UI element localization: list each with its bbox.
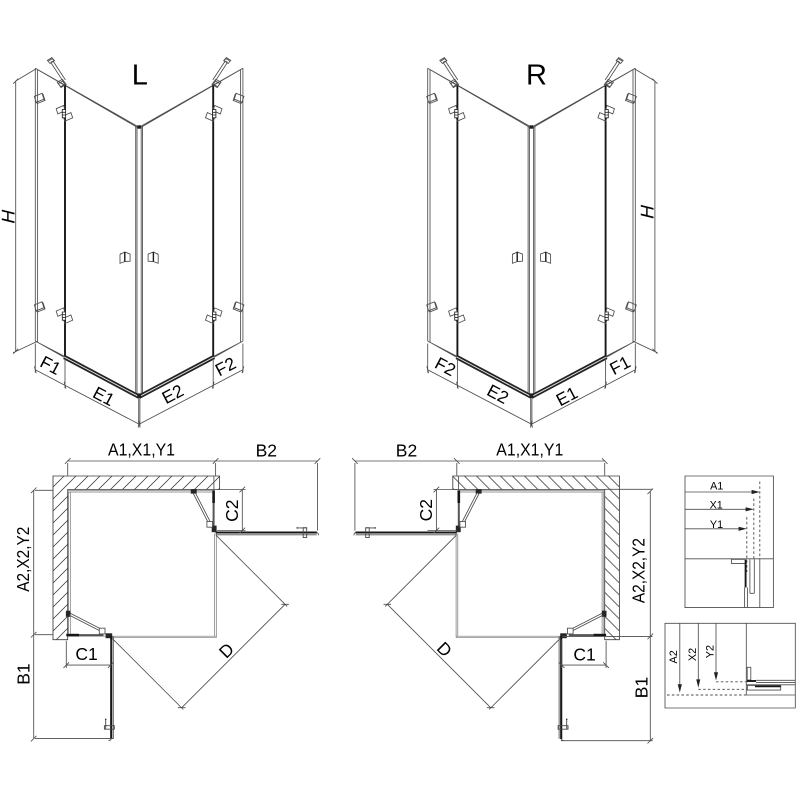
svg-text:C1: C1: [75, 644, 97, 664]
svg-text:L: L: [132, 60, 148, 92]
svg-text:D: D: [215, 639, 238, 662]
svg-text:C2: C2: [416, 499, 436, 521]
svg-text:B1: B1: [632, 677, 652, 698]
svg-text:F2: F2: [212, 353, 239, 380]
svg-text:A2,X2,Y2: A2,X2,Y2: [629, 538, 649, 603]
svg-text:D: D: [433, 638, 456, 661]
svg-text:A1: A1: [710, 481, 723, 493]
svg-text:E1: E1: [553, 382, 581, 410]
svg-text:A2,X2,Y2: A2,X2,Y2: [13, 527, 33, 592]
svg-text:B2: B2: [256, 440, 277, 460]
svg-text:A1,X1,Y1: A1,X1,Y1: [108, 439, 175, 459]
svg-text:A2: A2: [668, 650, 680, 663]
svg-text:H: H: [637, 202, 658, 221]
svg-text:X2: X2: [687, 648, 699, 661]
svg-text:R: R: [526, 60, 547, 92]
svg-text:A1,X1,Y1: A1,X1,Y1: [496, 439, 563, 459]
svg-text:Y1: Y1: [710, 519, 723, 531]
svg-text:F1: F1: [606, 352, 633, 379]
svg-text:B1: B1: [13, 663, 33, 684]
svg-text:E1: E1: [90, 382, 118, 410]
svg-text:C2: C2: [222, 500, 242, 522]
svg-text:C1: C1: [573, 645, 595, 665]
svg-text:F2: F2: [432, 353, 459, 380]
svg-text:Y2: Y2: [705, 645, 717, 658]
svg-text:X1: X1: [710, 500, 723, 512]
svg-text:B2: B2: [396, 440, 417, 460]
svg-text:F1: F1: [37, 352, 64, 379]
